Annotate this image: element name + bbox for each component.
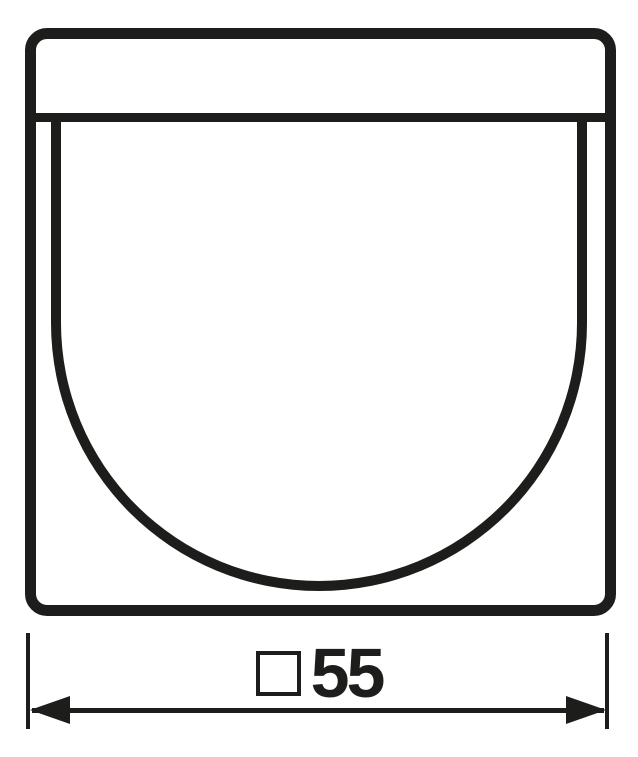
- dimension-drawing: 55: [0, 0, 638, 757]
- square-symbol-icon: [256, 651, 301, 696]
- right-arrowhead-icon: [566, 696, 606, 724]
- dimension-label: 55: [0, 646, 638, 698]
- dimension-value: 55: [311, 648, 383, 698]
- frame-divider-line: [31, 113, 607, 122]
- left-arrowhead-icon: [30, 696, 70, 724]
